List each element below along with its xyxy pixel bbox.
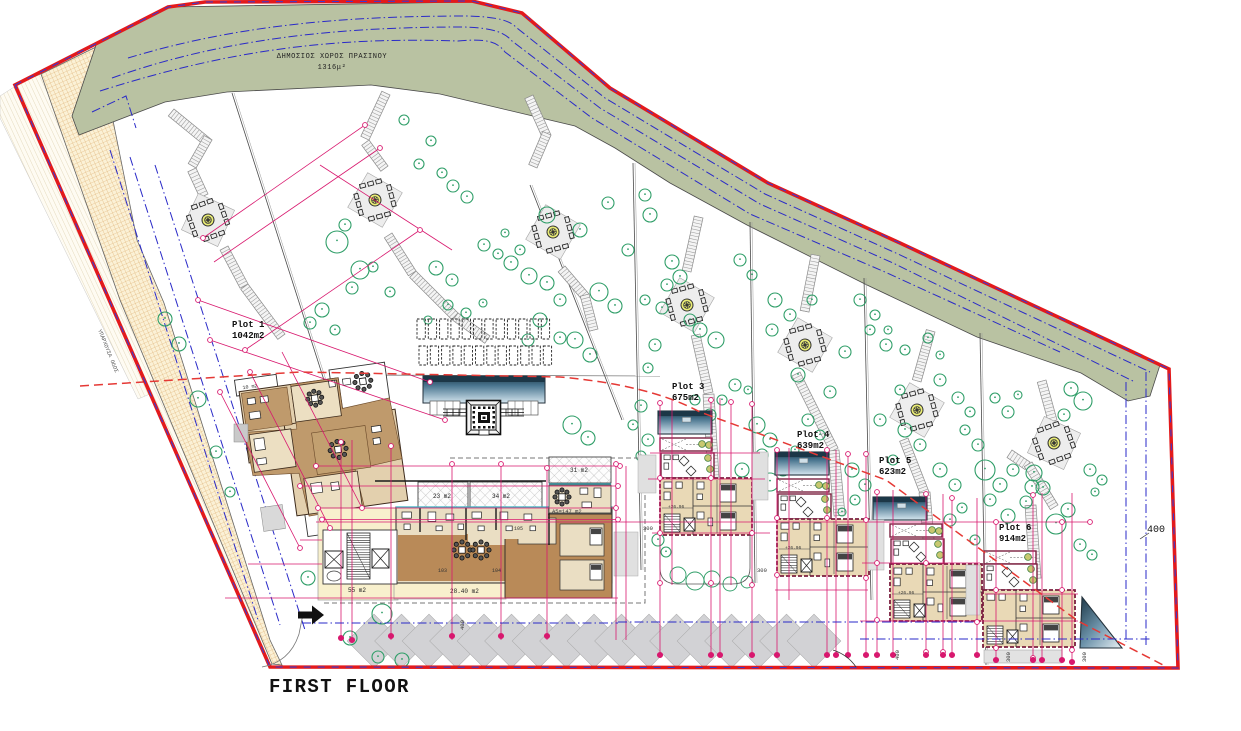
svg-text:400: 400: [1147, 525, 1165, 536]
svg-text:639m2: 639m2: [797, 441, 824, 451]
svg-text:Plot 3: Plot 3: [672, 382, 704, 392]
svg-text:Plot 5: Plot 5: [879, 456, 911, 466]
svg-text:A5=147 m2: A5=147 m2: [552, 508, 582, 515]
svg-text:55 m2: 55 m2: [348, 587, 366, 594]
svg-text:400: 400: [459, 620, 466, 630]
svg-text:400: 400: [894, 650, 901, 660]
svg-text:+26.96: +26.96: [898, 590, 915, 596]
svg-text:675m2: 675m2: [672, 393, 699, 403]
svg-text:300: 300: [1081, 652, 1088, 662]
svg-text:623m2: 623m2: [879, 467, 906, 477]
svg-text:FIRST FLOOR: FIRST FLOOR: [269, 676, 410, 698]
svg-text:Plot 1: Plot 1: [232, 320, 265, 330]
svg-text:914m2: 914m2: [999, 534, 1026, 544]
svg-text:ΔΗΜΟΣΙΟΣ ΧΩΡΟΣ ΠΡΑΣΙΝΟΥ: ΔΗΜΟΣΙΟΣ ΧΩΡΟΣ ΠΡΑΣΙΝΟΥ: [277, 53, 388, 61]
svg-text:23 m2: 23 m2: [433, 493, 451, 500]
svg-text:1316μ²: 1316μ²: [318, 64, 347, 72]
svg-text:+26.96: +26.96: [785, 545, 802, 551]
svg-text:31 m2: 31 m2: [570, 467, 588, 474]
svg-text:300: 300: [757, 567, 767, 574]
svg-text:103: 103: [438, 568, 447, 574]
svg-text:Plot 4: Plot 4: [797, 430, 830, 440]
svg-text:300: 300: [643, 525, 653, 532]
svg-text:104: 104: [492, 568, 501, 574]
svg-text:300: 300: [1005, 652, 1012, 662]
svg-text:+26.96: +26.96: [668, 504, 685, 510]
svg-text:1042m2: 1042m2: [232, 331, 264, 341]
svg-text:Plot 6: Plot 6: [999, 523, 1031, 533]
svg-text:105: 105: [514, 526, 523, 532]
svg-text:28.40 m2: 28.40 m2: [450, 588, 479, 595]
